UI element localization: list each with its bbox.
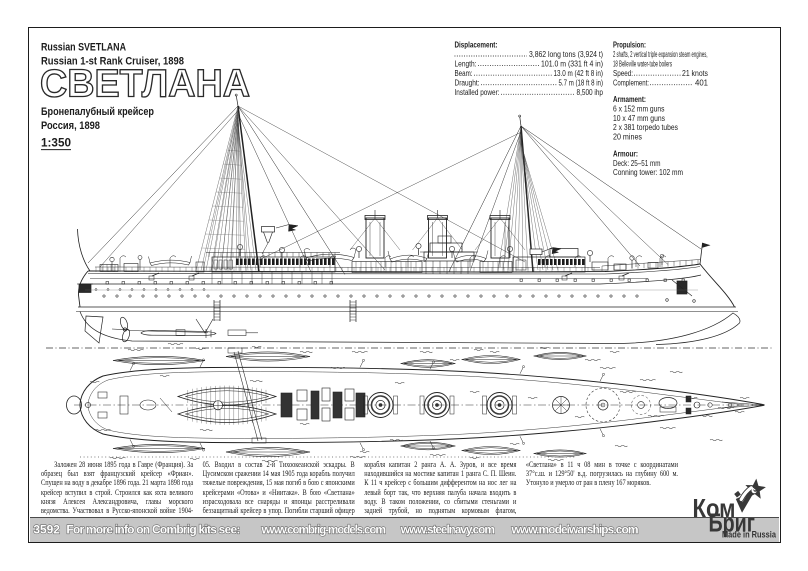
svg-text:www.modelwarships.com: www.modelwarships.com xyxy=(511,522,639,536)
svg-text:3592: 3592 xyxy=(33,522,60,536)
svg-text:www.steelnavy.com: www.steelnavy.com xyxy=(400,522,495,536)
svg-text:For more info on Combrig kits: For more info on Combrig kits see: xyxy=(66,522,240,536)
svg-text:www.combrig-models.com: www.combrig-models.com xyxy=(261,522,387,536)
svg-text:Made in Russia: Made in Russia xyxy=(722,530,776,540)
